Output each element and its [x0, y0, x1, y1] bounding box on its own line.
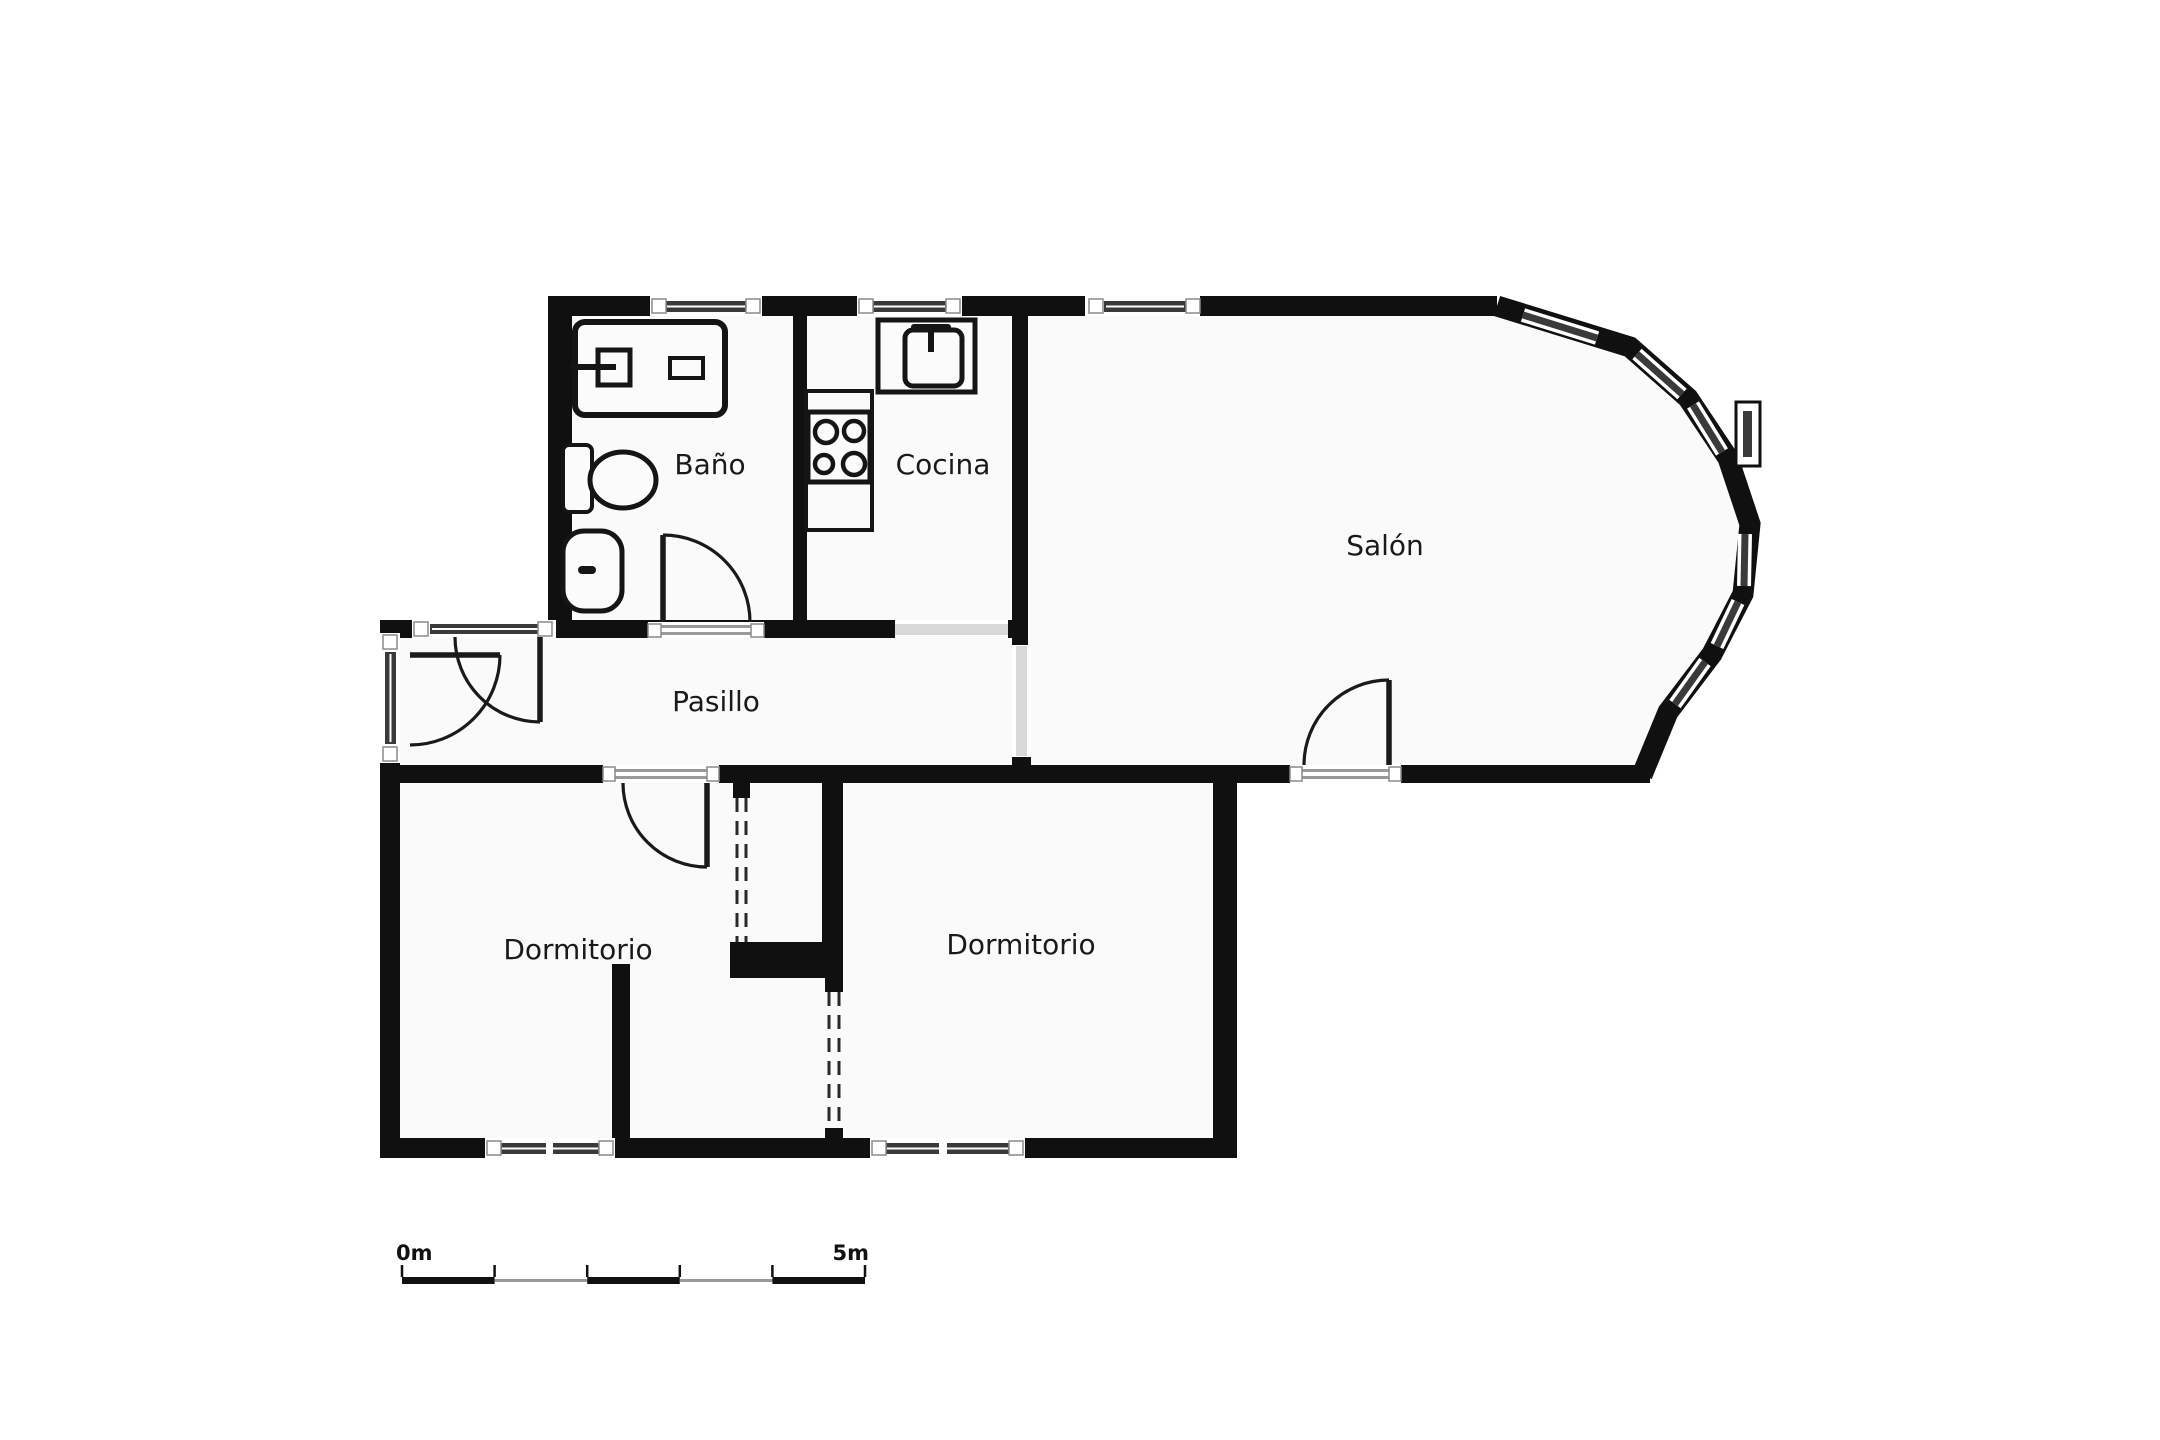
scale-label-end: 5m: [833, 1241, 870, 1265]
room-label-dormitorio-2: Dormitorio: [946, 928, 1095, 961]
window-cocina-top-frame-2: [946, 299, 960, 313]
scale-bar-segment-4: [680, 1279, 773, 1282]
wall-cocina-salon-divider: [1012, 316, 1028, 645]
door-salon-frame-1: [1290, 767, 1302, 781]
door-bath-frame-1: [648, 624, 661, 637]
room-label-salon: Salón: [1346, 529, 1424, 562]
vanity-faucet: [570, 364, 616, 370]
door-salon-frame-2: [1389, 767, 1401, 781]
door-bath-opening: [648, 622, 764, 638]
wall-p2-cap-bottom: [825, 1128, 843, 1140]
wall-dorm-left: [380, 765, 400, 1158]
kitchen-faucet-stem: [928, 330, 934, 352]
passage-cocina-pasillo: [895, 624, 1008, 635]
toilet-bowl: [590, 452, 656, 508]
wall-dorm-divider-low: [612, 964, 630, 1138]
door-dormitorio-1-frame-2: [707, 767, 719, 781]
door-salon-opening: [1290, 765, 1401, 783]
window-dorm1-bottom-frame-2: [599, 1141, 613, 1155]
window-dorm2-bottom-frame-1: [872, 1141, 886, 1155]
scale-label-start: 0m: [396, 1241, 433, 1265]
floor-plan-canvas: BañoCocinaSalónPasilloDormitorioDormitor…: [0, 0, 2160, 1440]
scale-bar-tick-3: [586, 1265, 589, 1277]
door-dormitorio-1-opening: [603, 765, 719, 783]
wall-closet-right: [822, 783, 843, 958]
window-dorm1-bottom-mullion-1: [546, 1141, 553, 1155]
bay-glazing-4: [1744, 534, 1745, 586]
bidet-faucet: [578, 566, 596, 574]
door-salon-threshold-1: [1302, 769, 1389, 772]
window-pasillo-top-frame-2: [538, 622, 552, 636]
floor-plan-drawing: BañoCocinaSalónPasilloDormitorioDormitor…: [0, 0, 2160, 1440]
room-label-pasillo: Pasillo: [672, 685, 760, 718]
scale-bar-segment-1: [402, 1277, 495, 1284]
scale-bar-tick-5: [771, 1265, 774, 1277]
door-bath-frame-2: [751, 624, 764, 637]
window-dorm1-bottom-frame-1: [487, 1141, 501, 1155]
scale-bar-segment-2: [495, 1279, 588, 1282]
door-dormitorio-1-frame-1: [603, 767, 615, 781]
room-label-bano: Baño: [674, 448, 745, 481]
door-dormitorio-1-threshold-1: [615, 769, 707, 772]
window-pasillo-top-frame-1: [414, 622, 428, 636]
window-bath-top-frame-2: [746, 299, 760, 313]
window-salon-top-frame-1: [1089, 299, 1103, 313]
door-bath-threshold-1: [661, 625, 751, 628]
door-dormitorio-1-threshold-2: [615, 776, 707, 779]
scale-bar-tick-2: [493, 1265, 496, 1277]
scale-bar-tick-4: [679, 1265, 682, 1277]
window-pasillo-left-frame-2: [383, 747, 397, 761]
window-dorm2-bottom-mullion-1: [939, 1141, 947, 1155]
window-dorm2-bottom-frame-2: [1009, 1141, 1023, 1155]
wall-p2-cap-top: [825, 978, 843, 992]
wall-p1-cap-top: [733, 783, 750, 798]
wall-south-band: [380, 765, 1650, 783]
scale-bar-segment-3: [587, 1277, 680, 1284]
window-pasillo-left-frame-1: [383, 635, 397, 649]
room-label-cocina: Cocina: [896, 448, 991, 481]
door-bath-threshold-2: [661, 632, 751, 635]
bay-protruding-window: [1743, 411, 1752, 457]
door-salon-threshold-2: [1302, 776, 1389, 779]
scale-bar-tick-1: [401, 1265, 404, 1277]
floor-area: [390, 306, 1750, 1148]
room-label-dormitorio-1: Dormitorio: [503, 933, 652, 966]
window-cocina-top-frame-1: [859, 299, 873, 313]
window-bath-top-frame-1: [652, 299, 666, 313]
wall-closet-middle: [730, 942, 843, 978]
passage-pasillo-salon: [1016, 646, 1027, 756]
scale-bar-tick-6: [864, 1265, 867, 1277]
scale-bar-segment-5: [772, 1277, 865, 1284]
kitchen-faucet-bar: [911, 324, 951, 330]
wall-dorm2-right: [1213, 765, 1237, 1158]
window-salon-top-frame-2: [1186, 299, 1200, 313]
